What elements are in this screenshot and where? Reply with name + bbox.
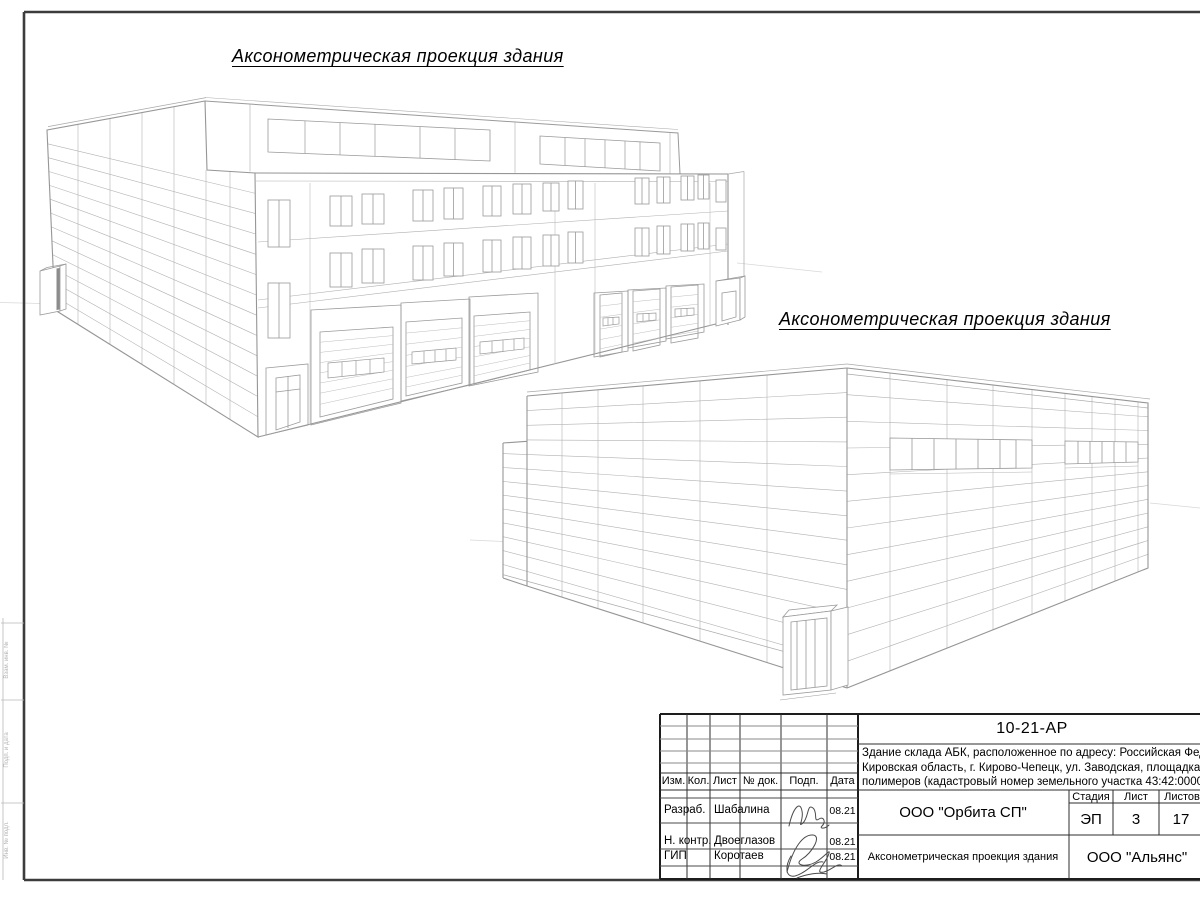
stamp-sheets-value: 17: [1173, 811, 1190, 828]
stamp-name-shabalina: Шабалина: [714, 804, 770, 816]
stamp-sheet-value: 3: [1132, 811, 1140, 828]
stamp-sheet-label: Лист: [1124, 791, 1148, 803]
stamp-stage-label: Стадия: [1072, 791, 1110, 803]
margin-label-inv: Инв. № подл.: [4, 805, 10, 875]
building-2-right-wall: [847, 364, 1150, 688]
axon-view-2-title: Аксонометрическая проекция здания: [779, 309, 1111, 330]
signature-shabalina: [789, 806, 829, 828]
building-2-strip-windows: [890, 438, 1138, 474]
stamp-role-nkontr: Н. контр.: [664, 835, 711, 847]
stamp-role-gip: ГИП: [664, 850, 687, 862]
stamp-object-description-line1: Здание склада АБК, расположенное по адре…: [862, 746, 1200, 761]
stamp-col-izm: Изм.: [662, 775, 686, 787]
building-2-axonometric-view: [503, 364, 1150, 700]
stamp-name-dvoeglazov: Двоеглазов: [714, 835, 775, 847]
stamp-col-data: Дата: [830, 775, 854, 787]
stamp-design-org: ООО "Орбита СП": [899, 804, 1027, 821]
building-1-roof-clerestory: [205, 98, 680, 175]
stamp-object-description-line2: Кировская область, г. Кирово-Чепецк, ул.…: [862, 761, 1200, 776]
stamp-col-list: Лист: [713, 775, 737, 787]
stamp-col-podp: Подп.: [789, 775, 818, 787]
axon-view-1-title: Аксонометрическая проекция здания: [232, 46, 564, 67]
building-2-entrance-annex: [780, 605, 848, 700]
stamp-role-razrab: Разраб.: [664, 804, 705, 816]
stamp-doc-number: 10-21-АР: [996, 720, 1068, 738]
stamp-contractor-org: ООО "Альянс": [1087, 849, 1187, 866]
stamp-col-kol: Кол.: [688, 775, 710, 787]
building-1-ground-floor-doors: [266, 284, 704, 435]
stamp-col-doc: № док.: [743, 775, 778, 787]
margin-label-podp: Подп. и дата: [4, 715, 10, 785]
stamp-object-description-line3: полимеров (кадастровый номер земельного …: [862, 775, 1200, 790]
stamp-date-3: 08.21: [829, 851, 855, 863]
stamp-drawing-name: Аксонометрическая проекция здания: [868, 851, 1058, 863]
stamp-object-description: Здание склада АБК, расположенное по адре…: [862, 746, 1200, 790]
building-1-left-wall: [47, 98, 258, 437]
stamp-date-1: 08.21: [829, 805, 855, 817]
stamp-date-2: 08.21: [829, 836, 855, 848]
stamp-stage-value: ЭП: [1080, 811, 1102, 828]
building-1-windows: [268, 175, 726, 338]
stamp-name-korotaev: Коротаев: [714, 850, 764, 862]
drawing-sheet: Аксонометрическая проекция здания Аксоно…: [0, 0, 1200, 900]
margin-label-vzam: Взам. инв. №: [4, 625, 10, 695]
personnel-door: [276, 375, 300, 430]
building-1-left-annex: [40, 264, 66, 315]
stamp-sheets-label: Листов: [1164, 791, 1200, 803]
building-1-right-annex: [716, 276, 745, 326]
personnel-door-portal: [266, 364, 308, 435]
